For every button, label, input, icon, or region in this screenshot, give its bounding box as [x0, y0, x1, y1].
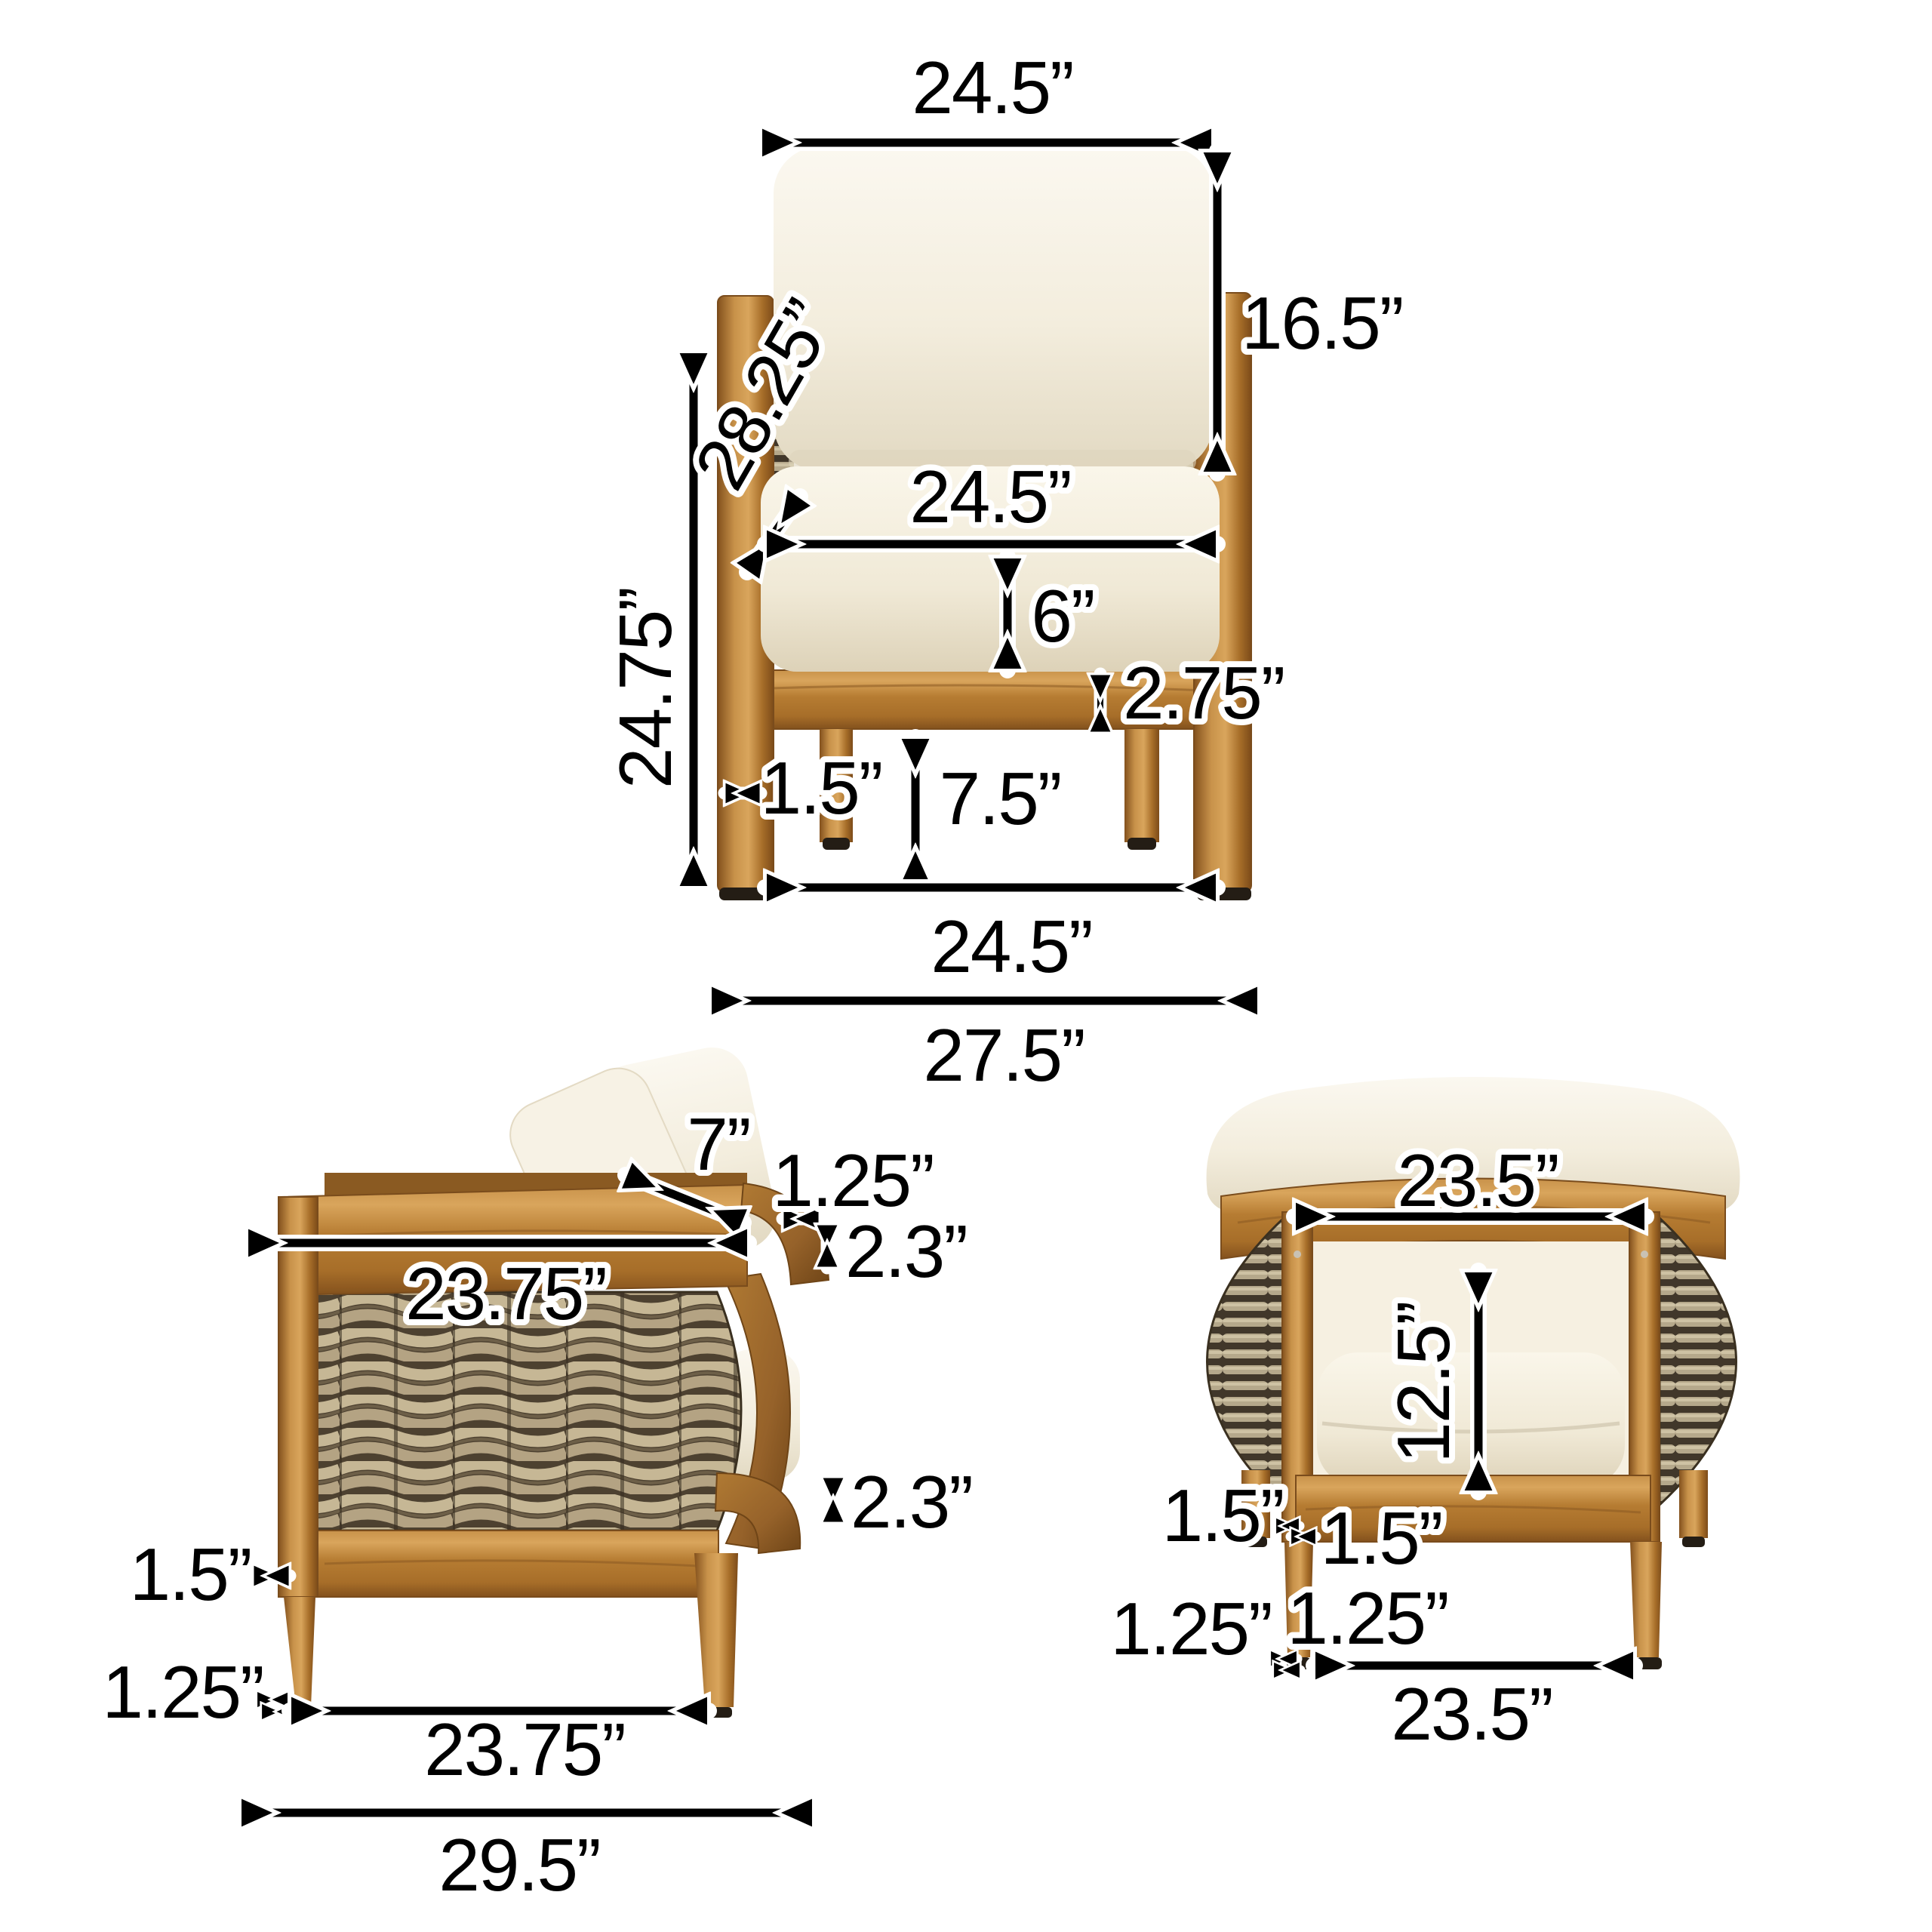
- dim-label-side-arm-depth: 23.75”: [405, 1252, 606, 1335]
- dim-label-back-width: 23.5”: [1397, 1139, 1558, 1222]
- dim-label-back-foot-inner: 1.25”: [1287, 1577, 1447, 1660]
- dimension-diagram: 24.5” 16.5” 28.25” 24.75” 24.5” 6” 2.75”…: [0, 0, 1932, 1932]
- dim-label-side-leg-width: 1.5”: [130, 1533, 251, 1616]
- front-inner-foot-right: [1128, 838, 1156, 850]
- screw: [1294, 1251, 1301, 1258]
- front-inner-leg-right: [1124, 729, 1159, 842]
- dim-label-back-opening-height: 12.5”: [1382, 1302, 1465, 1463]
- front-back-cushion: [774, 146, 1213, 471]
- dim-label-front-leg-width: 1.5”: [761, 746, 882, 829]
- back-view: 23.5” 12.5” 1.5” 1.5” 1.25” 1.25” 23.5”: [1110, 1077, 1740, 1755]
- dim-label-front-cushion-thickness: 6”: [1031, 574, 1094, 657]
- side-view: 7” 1.25” 2.3” 23.75” 2.3” 1.5” 1.25” 23.…: [102, 1041, 972, 1906]
- dim-label-back-foot-outer: 1.25”: [1110, 1587, 1271, 1670]
- dim-label-side-backrail-bottom: 2.3”: [851, 1460, 972, 1543]
- dim-label-front-back-cushion-height: 16.5”: [1241, 281, 1402, 365]
- dim-label-front-side-height: 24.75”: [604, 588, 687, 789]
- back-outer-leg-right: [1679, 1470, 1708, 1538]
- front-inner-foot-left: [823, 838, 850, 850]
- back-left-wicker: [1207, 1218, 1284, 1505]
- back-right-wicker: [1660, 1218, 1737, 1505]
- side-front-upright: [278, 1197, 318, 1597]
- side-rear-leg: [694, 1553, 738, 1707]
- dim-label-side-pillow-depth: 7”: [687, 1103, 749, 1186]
- front-view: 24.5” 16.5” 28.25” 24.75” 24.5” 6” 2.75”…: [604, 46, 1402, 1097]
- diagram-canvas: 24.5” 16.5” 28.25” 24.75” 24.5” 6” 2.75”…: [0, 0, 1932, 1932]
- dim-label-side-foot-width: 1.25”: [102, 1651, 263, 1734]
- side-front-leg: [284, 1597, 315, 1707]
- back-leg-right: [1630, 1542, 1662, 1657]
- dim-label-front-overall-width: 27.5”: [923, 1014, 1084, 1097]
- dim-label-back-leg-inner: 1.5”: [1321, 1497, 1442, 1580]
- dim-label-front-seat-width: 24.5”: [909, 455, 1070, 538]
- dim-label-front-rail-height: 2.75”: [1123, 651, 1284, 734]
- dim-label-side-overall-depth: 29.5”: [438, 1823, 599, 1906]
- dim-label-back-leg-outer: 1.5”: [1162, 1474, 1284, 1557]
- dim-label-front-back-cushion-width: 24.5”: [912, 46, 1072, 129]
- dim-label-side-leg-span: 23.75”: [424, 1708, 625, 1791]
- dim-label-back-leg-span: 23.5”: [1391, 1672, 1552, 1755]
- back-outer-foot-right: [1682, 1537, 1705, 1547]
- dim-label-front-inner-span: 24.5”: [931, 905, 1091, 988]
- dim-label-side-backrail-top: 2.3”: [845, 1210, 967, 1293]
- screw: [1641, 1251, 1648, 1258]
- dim-label-front-clearance: 7.5”: [940, 757, 1061, 840]
